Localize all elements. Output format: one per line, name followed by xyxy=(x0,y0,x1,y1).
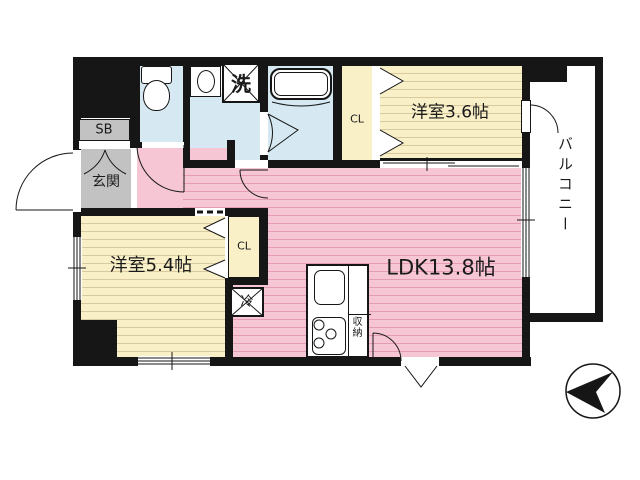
wall-closet-lower-bottom xyxy=(225,278,268,285)
wall-balcony-stub xyxy=(528,66,567,82)
room-label-36: 洋室3.6帖 xyxy=(411,105,489,122)
wall-balcony-right xyxy=(595,57,603,322)
label-refrigerator: 冷 xyxy=(240,296,253,309)
kitchen-stove xyxy=(312,317,346,355)
label-entrance: 玄関 xyxy=(92,175,120,189)
ldk-service-door-opening xyxy=(401,357,439,366)
label-kitchen-storage: 収納 xyxy=(350,316,360,338)
kitchen-sink xyxy=(314,270,345,305)
room36-sliding-band xyxy=(380,161,522,168)
wall-entrance-toilet xyxy=(130,57,140,148)
entrance-door-opening xyxy=(71,150,81,212)
window-east-ldk xyxy=(521,168,531,277)
wall-toilet-bottom-l xyxy=(130,142,142,148)
room-label-54: 洋室5.4帖 xyxy=(110,257,193,275)
floor-plan: LDK13.8帖 洋室3.6帖 洋室5.4帖 玄関 SB CL CL 洗 冷 収… xyxy=(0,0,640,480)
label-balcony: バルコニー xyxy=(557,136,572,236)
wall-bath-right xyxy=(333,57,342,168)
room54-hall-opening xyxy=(195,208,225,216)
wall-east-mid xyxy=(522,133,530,168)
pillar-southwest xyxy=(78,320,117,360)
wall-washroom-stub xyxy=(227,140,235,168)
wall-bath-left-upper xyxy=(260,57,268,112)
room-label-ldk: LDK13.8帖 xyxy=(386,258,495,279)
balcony-door-swing xyxy=(530,105,558,133)
bathtub xyxy=(270,68,332,100)
window-west xyxy=(72,237,82,300)
label-closet-lower: CL xyxy=(237,241,251,252)
closet-upper-front xyxy=(372,66,380,160)
bath-door-opening xyxy=(260,112,268,155)
wall-east-upper xyxy=(522,66,530,100)
wall-east-lower xyxy=(522,277,530,366)
shoe-box-gap xyxy=(79,141,130,149)
pipe-shaft xyxy=(79,62,130,118)
wall-washroom-bottom-r xyxy=(268,160,380,168)
wall-closet-lower-right xyxy=(260,208,268,285)
kitchen-divider-h xyxy=(348,314,371,315)
wall-balcony-bottom xyxy=(528,313,603,322)
compass-icon xyxy=(566,364,620,418)
label-laundry: 洗 xyxy=(231,74,251,94)
toilet-bowl xyxy=(143,80,170,111)
wall-toilet-right xyxy=(183,57,190,168)
toilet-door-opening xyxy=(142,142,184,148)
balcony-door-leaf xyxy=(521,100,531,133)
closet-lower-front xyxy=(225,216,228,278)
washroom-door-opening xyxy=(235,160,268,168)
entrance-door-swing xyxy=(16,153,73,210)
washbasin-bowl xyxy=(197,70,215,93)
kitchen-unit xyxy=(306,264,369,358)
kitchen-divider-v xyxy=(348,266,349,356)
wall-hall-bottom-l xyxy=(81,208,195,216)
label-shoe-box: SB xyxy=(95,124,112,137)
window-south xyxy=(138,356,210,366)
label-closet-upper: CL xyxy=(350,114,364,125)
